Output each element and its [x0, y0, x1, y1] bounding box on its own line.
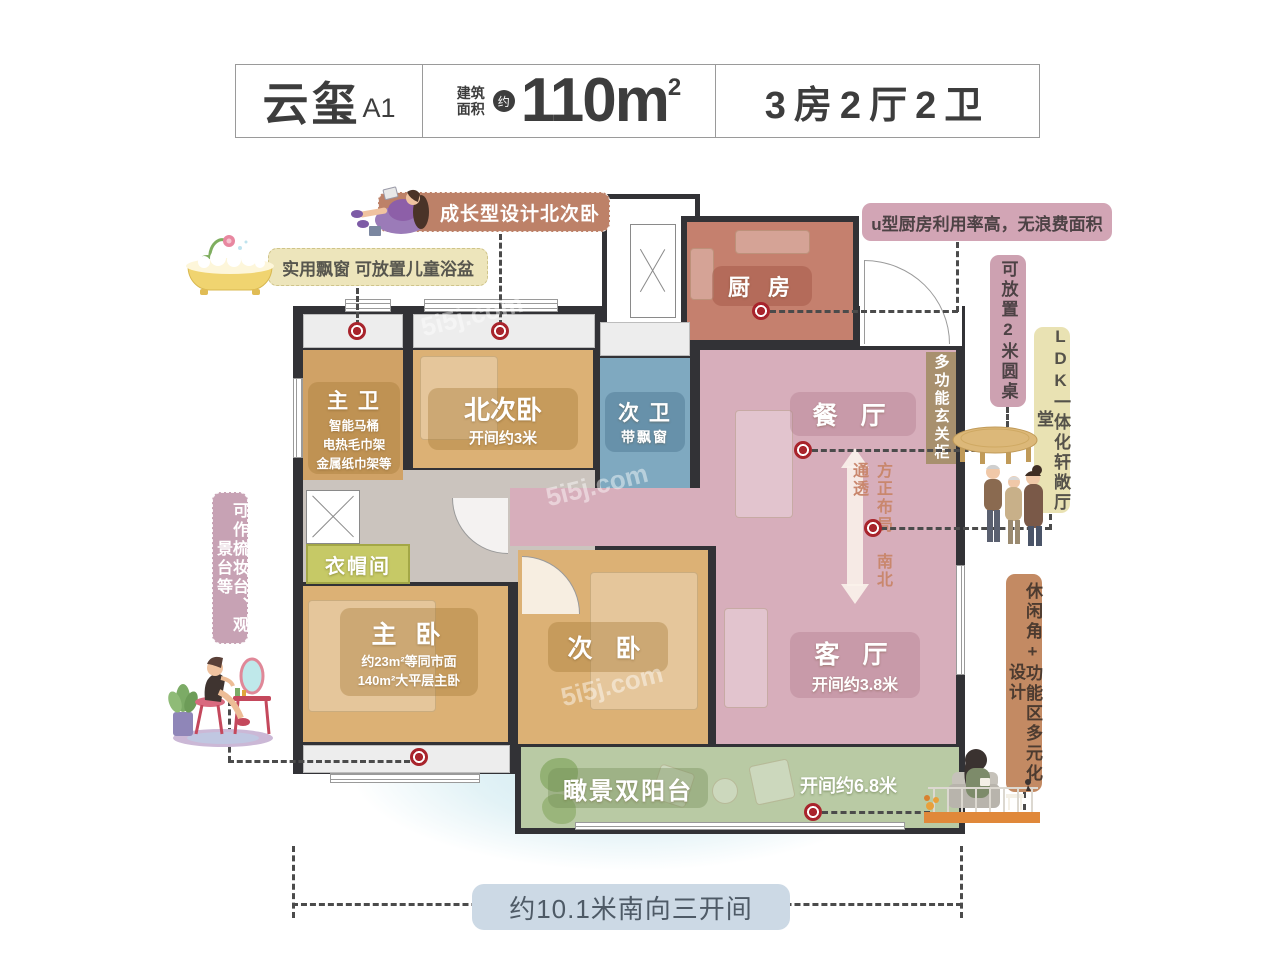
kitchen-sink: [690, 248, 714, 300]
living-label: 客 厅 开间约3.8米: [790, 632, 920, 698]
master-bedroom-desc1: 约23m²等同市面: [361, 651, 456, 670]
callout-south-facing-text: 约10.1米南向三开间: [509, 889, 753, 926]
project-name: 云玺: [262, 68, 360, 134]
callout-kitchen-text: u型厨房利用率高，无浪费面积: [871, 210, 1102, 235]
master-bedroom-name: 主 卧: [372, 615, 447, 651]
kitchen-label: 厨 房: [712, 266, 812, 306]
approx-circle: 约: [493, 90, 515, 112]
area-value: 110m: [521, 70, 668, 132]
red-dot-marker: [804, 803, 822, 821]
dimension-end-left: [292, 846, 295, 918]
red-dot-marker: [348, 322, 366, 340]
unit-label: A1: [362, 93, 395, 124]
dining-table: [735, 410, 793, 518]
north-bedroom-dim: 开间约3米: [469, 427, 537, 448]
master-bath-feature-1: 智能马桶: [329, 415, 379, 434]
red-dot-marker: [410, 748, 428, 766]
dimension-end-right: [960, 846, 963, 918]
elevator-x-icon: [630, 224, 676, 318]
dining-label: 餐 厅: [790, 392, 916, 436]
master-bedroom-label: 主 卧 约23m²等同市面 140m²大平层主卧: [340, 608, 478, 696]
title-bar: 云玺 A1 建筑 面积 约 110m 2 3房2厅2卫: [235, 64, 1040, 138]
area-label-line1: 建筑: [457, 85, 485, 101]
red-dot-marker: [491, 322, 509, 340]
kitchen-stove: [735, 230, 810, 254]
balcony-window: [575, 822, 905, 830]
bay-window-sill-3: [600, 322, 690, 356]
red-dot-marker: [864, 519, 882, 537]
master-bath-feature-3: 金属纸巾架等: [316, 453, 391, 472]
window-north-2: [424, 299, 558, 312]
living-sofa: [724, 608, 768, 708]
second-bedroom-name: 次 卧: [568, 629, 649, 665]
foyer-cabinet-label: 多功能玄关柜: [934, 354, 949, 462]
bathtub-illustration: [180, 218, 280, 298]
callout-north-bedroom-text: 成长型设计北次卧: [440, 199, 600, 226]
connector: [770, 310, 958, 313]
leisure-balcony-illustration: [922, 732, 1044, 826]
living-name: 客 厅: [815, 635, 896, 671]
second-bath-feature: 带飘窗: [621, 427, 669, 447]
floorplan-page: { "header": { "project_name": "云玺", "uni…: [0, 0, 1280, 960]
red-dot-marker: [794, 441, 812, 459]
callout-bay-window: 实用飘窗 可放置儿童浴盆: [268, 248, 488, 286]
red-dot-marker: [752, 302, 770, 320]
window-west: [293, 378, 303, 458]
cloakroom-label: 衣帽间: [325, 550, 391, 579]
callout-round-table-text: 可放置2米圆桌: [1000, 260, 1017, 402]
dining-name: 餐 厅: [813, 396, 894, 432]
connector: [228, 760, 410, 763]
window-south: [330, 773, 480, 783]
master-bath-label: 主 卫 智能马桶 电热毛巾架 金属纸巾架等: [308, 382, 400, 474]
area-exponent: 2: [668, 74, 681, 102]
pink-hall-strip: [510, 488, 702, 546]
north-bedroom-label: 北次卧 开间约3米: [428, 388, 578, 450]
layout-summary: 3房2厅2卫: [765, 74, 990, 129]
second-bedroom-label: 次 卧: [548, 622, 668, 672]
connector: [956, 242, 959, 312]
project-name-section: 云玺 A1: [236, 65, 422, 137]
living-dim: 开间约3.8米: [812, 671, 898, 695]
area-label: 建筑 面积: [457, 85, 485, 117]
connector: [822, 811, 930, 814]
callout-bay-window-text: 实用飘窗 可放置儿童浴盆: [282, 255, 474, 280]
balcony-label: 瞰景双阳台: [548, 768, 708, 808]
duct-x-icon: [306, 490, 360, 544]
master-bedroom-desc2: 140m²大平层主卧: [358, 670, 461, 689]
second-bath-label: 次 卫 带飘窗: [605, 392, 685, 452]
kitchen-name: 厨 房: [728, 270, 796, 302]
master-bath-name: 主 卫: [327, 385, 381, 415]
connector: [356, 288, 359, 326]
balcony-chair-2: [748, 758, 795, 805]
callout-kitchen: u型厨房利用率高，无浪费面积: [862, 203, 1112, 241]
balcony-name: 瞰景双阳台: [563, 771, 693, 806]
connector: [499, 234, 502, 326]
vanity-illustration: [165, 612, 277, 750]
bay-window-sill-south: [303, 745, 510, 773]
second-bath-name: 次 卫: [618, 397, 672, 427]
elderly-couple-illustration: [980, 460, 1046, 552]
reading-girl-illustration: [345, 180, 440, 238]
room-cloakroom: 衣帽间: [306, 544, 410, 584]
north-bedroom-name: 北次卧: [464, 390, 542, 427]
area-section: 建筑 面积 约 110m 2: [422, 65, 715, 137]
callout-round-table: 可放置2米圆桌: [990, 255, 1026, 407]
master-bath-feature-2: 电热毛巾架: [323, 434, 386, 453]
area-label-line2: 面积: [457, 101, 485, 117]
callout-south-facing: 约10.1米南向三开间: [472, 884, 790, 930]
balcony-table: [712, 778, 738, 804]
layout-section: 3房2厅2卫: [715, 65, 1039, 137]
window-north-1: [345, 299, 391, 312]
